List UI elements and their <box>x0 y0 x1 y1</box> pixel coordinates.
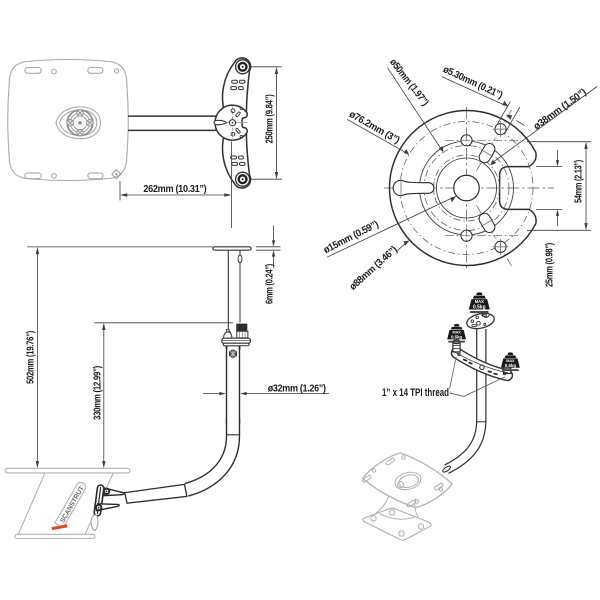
svg-text:1” x 14 TPI thread: 1” x 14 TPI thread <box>382 387 449 399</box>
svg-text:6mm (0.24”): 6mm (0.24”) <box>265 264 276 304</box>
svg-text:25mm (0.98”): 25mm (0.98”) <box>545 243 556 287</box>
svg-text:ø32mm (1.26”): ø32mm (1.26”) <box>268 383 326 394</box>
svg-text:262mm (10.31”): 262mm (10.31”) <box>143 184 206 195</box>
svg-text:502mm (19.76”): 502mm (19.76”) <box>26 331 37 384</box>
svg-text:0.5kg: 0.5kg <box>451 335 462 340</box>
svg-text:0.5kg: 0.5kg <box>473 305 486 311</box>
svg-text:0.5kg: 0.5kg <box>505 363 516 368</box>
svg-text:330mm (12.99”): 330mm (12.99”) <box>93 366 104 420</box>
svg-text:MAX: MAX <box>475 299 484 304</box>
svg-text:250mm (9.84”): 250mm (9.84”) <box>265 94 276 143</box>
svg-text:54mm (2.13”): 54mm (2.13”) <box>574 160 585 203</box>
